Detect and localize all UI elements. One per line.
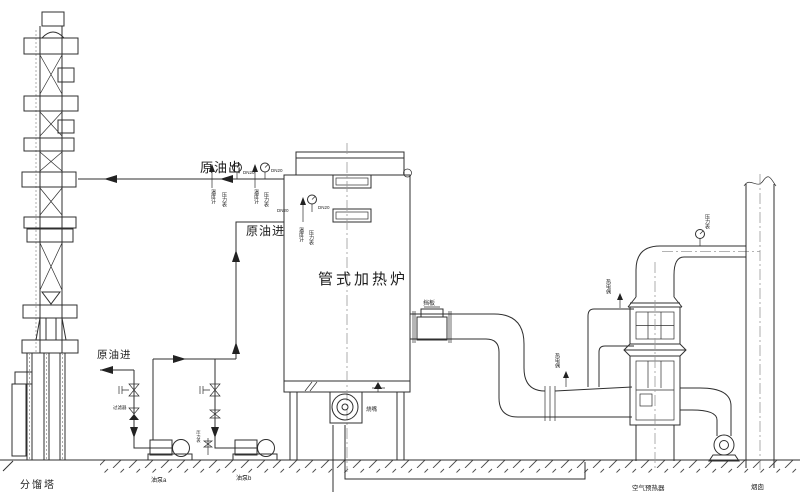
label-crude-in-lower: 原油进 — [97, 348, 132, 361]
temp-tap-tag: 温度计 — [298, 226, 304, 243]
temp-tap-tag: 温度计 — [210, 188, 216, 205]
crude-oil-out-line — [78, 175, 284, 183]
anchor-symbol — [372, 382, 385, 392]
lifting-lug-icon — [404, 169, 412, 177]
label-damper: 挡板 — [423, 299, 435, 307]
crude-oil-in-line-lower — [100, 366, 172, 448]
fractionating-tower — [12, 12, 78, 460]
preheater-outlet-elbow — [680, 388, 731, 436]
burner-blower — [330, 392, 362, 423]
flue-duct-s-bend — [450, 314, 632, 421]
coil-nozzle-box-mid — [333, 209, 371, 222]
thermo-tap-tag: 热电偶 — [554, 352, 560, 369]
preheater-temp-tap — [617, 293, 623, 308]
label-crude-out: 原油出 — [200, 160, 242, 175]
flue-damper — [410, 307, 451, 343]
piping-diagram: 原油出 原油进 原油进 分馏塔 管式加热炉 空气预热器 烟囱 油泵a 油泵b 挡… — [0, 0, 800, 495]
label-tower: 分馏塔 — [20, 478, 56, 491]
label-pump-a: 油泵a — [151, 476, 167, 484]
press-tap-tag: 压力表 — [704, 214, 710, 230]
tower-skirt-legs — [27, 353, 65, 460]
press-tap-tag: 压力表 — [221, 192, 227, 208]
duct-temp-tap — [563, 371, 569, 387]
label-stack: 烟囱 — [751, 482, 764, 491]
suction-gate-valve — [119, 384, 139, 420]
spare-gate-valve — [200, 384, 220, 418]
dn20-tag: DN20 — [318, 205, 330, 210]
crude-out-instrument-b — [252, 163, 270, 188]
thermo-tap-tag: 热电偶 — [605, 278, 611, 295]
press-tap-tag: 压力表 — [308, 230, 314, 246]
pump-b-vent-valve — [204, 438, 212, 455]
label-furnace: 管式加热炉 — [318, 271, 408, 288]
temp-tap-tag: 温度计 — [253, 188, 259, 205]
bypass-duct — [588, 309, 634, 387]
stack-duct-gauge — [696, 230, 705, 247]
ground-line — [0, 460, 800, 473]
press-tap-tag: 压力表 — [263, 192, 269, 208]
dn20-tag: DN20 — [271, 168, 283, 173]
crude-pump-a — [148, 440, 192, 461]
label-crude-in-upper: 原油进 — [246, 224, 285, 238]
label-pump-b: 油泵b — [236, 474, 252, 482]
crude-pump-b — [233, 440, 277, 461]
tower-ladder-cage — [12, 372, 32, 456]
pump-discharge-header — [153, 355, 257, 448]
crude-oil-in-line-upper — [232, 222, 284, 359]
crude-in-instrument — [300, 195, 317, 222]
underground-flue-duct — [333, 425, 585, 492]
label-air-preheater: 空气预热器 — [632, 483, 665, 492]
dn20-tag: DN20 — [277, 208, 289, 213]
diagram-svg: 原油出 原油进 原油进 分馏塔 管式加热炉 空气预热器 烟囱 油泵a 油泵b 挡… — [0, 0, 800, 495]
combustion-air-blower — [709, 435, 739, 461]
air-preheater — [624, 262, 686, 470]
dn20-tag: DN20 — [243, 170, 255, 175]
label-burner: 烧嘴 — [366, 405, 378, 413]
coil-nozzle-box-top — [333, 175, 371, 188]
chimney-stack — [744, 174, 776, 470]
press-tap-tag: 压力表 — [196, 430, 202, 444]
inspection-port-icon — [640, 394, 652, 406]
strainer-tag: 过滤器 — [113, 404, 127, 411]
